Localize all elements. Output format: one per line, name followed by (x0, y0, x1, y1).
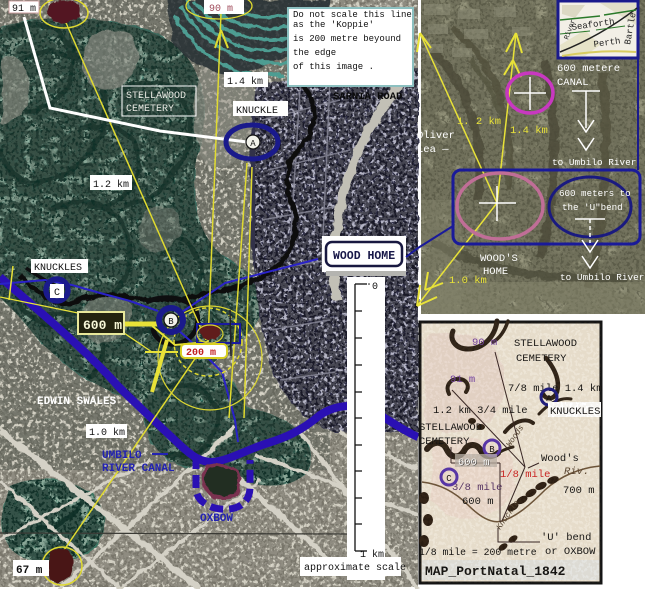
svg-text:1.0 km: 1.0 km (89, 427, 125, 439)
svg-text:the edge: the edge (293, 48, 336, 58)
svg-text:UMBILO: UMBILO (102, 450, 142, 462)
svg-text:WOOD HOME: WOOD HOME (333, 250, 395, 263)
svg-text:to Umbilo River: to Umbilo River (560, 272, 644, 283)
svg-text:1.4 km: 1.4 km (510, 125, 548, 137)
svg-text:600 meters to: 600 meters to (559, 188, 631, 199)
svg-text:600 metere: 600 metere (557, 63, 620, 75)
svg-text:1. 2 km: 1. 2 km (457, 116, 501, 128)
svg-text:OXBOW: OXBOW (200, 513, 233, 525)
svg-text:Oliver: Oliver (417, 130, 455, 142)
svg-text:91 m: 91 m (12, 4, 36, 15)
svg-text:Do not scale this line: Do not scale this line (293, 10, 412, 20)
svg-text:200 m: 200 m (186, 348, 216, 359)
svg-text:KNUCKLES: KNUCKLES (34, 263, 82, 274)
svg-text:B: B (168, 317, 174, 327)
svg-text:1.0 km: 1.0 km (449, 275, 487, 287)
svg-text:SARNIA ROAD: SARNIA ROAD (333, 91, 402, 103)
svg-text:the 'U"bend: the 'U"bend (562, 202, 623, 213)
svg-text:CEMETERY: CEMETERY (126, 104, 174, 115)
svg-text:CANAL: CANAL (557, 77, 589, 89)
svg-text:1.4 km: 1.4 km (227, 76, 263, 88)
svg-text:WOOD'S: WOOD'S (480, 253, 518, 265)
svg-text:1.2 km: 1.2 km (93, 179, 129, 191)
svg-text:is 200 metre beyound: is 200 metre beyound (293, 34, 401, 44)
svg-text:of this image .: of this image . (293, 62, 374, 72)
svg-text:0: 0 (372, 282, 378, 293)
svg-text:as the 'Koppie': as the 'Koppie' (293, 20, 374, 30)
svg-text:KNUCKLE: KNUCKLE (236, 106, 278, 117)
svg-text:Lea —: Lea — (417, 144, 449, 156)
svg-text:67 m: 67 m (16, 565, 43, 577)
svg-text:C: C (54, 288, 60, 299)
svg-text:EDWIN SWALES: EDWIN SWALES (37, 396, 117, 408)
svg-text:approximate scale: approximate scale (304, 562, 406, 574)
svg-text:90 m: 90 m (209, 4, 233, 15)
svg-text:600 m: 600 m (83, 318, 122, 333)
svg-text:to Umbilo River: to Umbilo River (552, 157, 636, 168)
svg-text:A: A (250, 139, 256, 149)
svg-text:STELLAWOOD: STELLAWOOD (126, 91, 186, 102)
svg-text:RIVER CANAL: RIVER CANAL (102, 463, 175, 475)
